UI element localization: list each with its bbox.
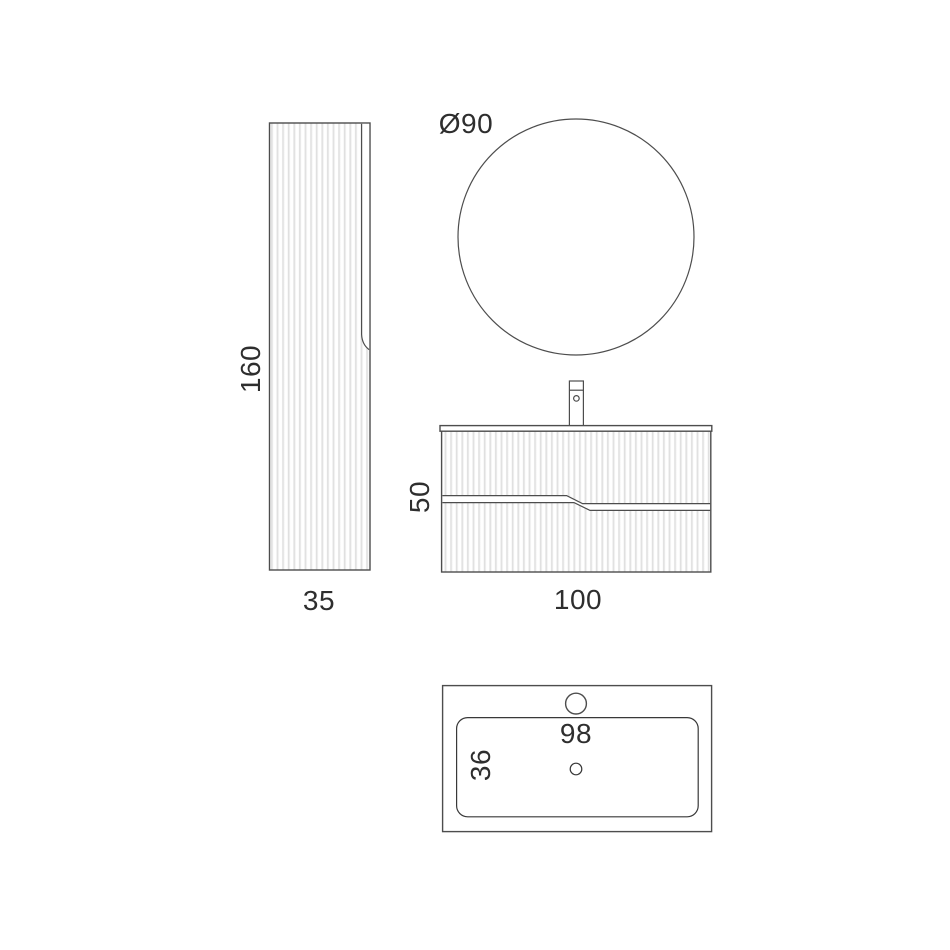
dimension-drawing: 160 35 Ø90 50 100 98 36 xyxy=(0,0,950,950)
faucet-body xyxy=(569,381,583,427)
label-mirror-diameter: Ø90 xyxy=(439,108,493,139)
label-vanity-height: 50 xyxy=(404,481,435,513)
tall-cabinet-door-edge xyxy=(362,124,370,350)
vanity-countertop xyxy=(440,426,712,432)
label-cabinet-height: 160 xyxy=(235,345,266,393)
label-basin-depth: 36 xyxy=(465,749,496,781)
mirror-circle xyxy=(458,119,694,355)
drawing-canvas: 160 35 Ø90 50 100 98 36 xyxy=(0,0,950,950)
label-basin-width: 98 xyxy=(560,718,592,749)
label-vanity-width: 100 xyxy=(554,584,602,615)
vanity-front-view xyxy=(440,381,712,572)
tall-cabinet-body xyxy=(270,123,371,570)
faucet xyxy=(569,381,583,427)
tall-cabinet-side-view xyxy=(270,123,371,570)
label-cabinet-width: 35 xyxy=(303,585,335,616)
